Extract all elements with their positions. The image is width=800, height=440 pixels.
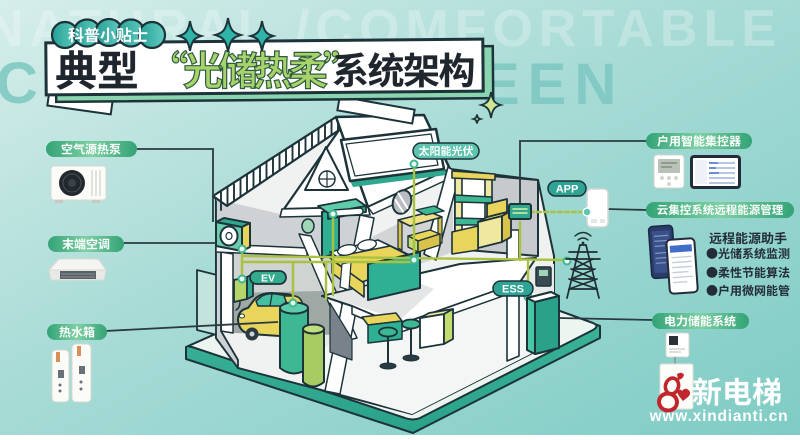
svg-text:ESS: ESS (502, 284, 524, 296)
svg-text:EEN: EEN (481, 52, 624, 117)
svg-text:EV: EV (261, 273, 275, 285)
svg-text:C: C (0, 51, 46, 116)
svg-text:www.xindianti.cn: www.xindianti.cn (649, 408, 789, 425)
svg-text:APP: APP (556, 184, 579, 196)
